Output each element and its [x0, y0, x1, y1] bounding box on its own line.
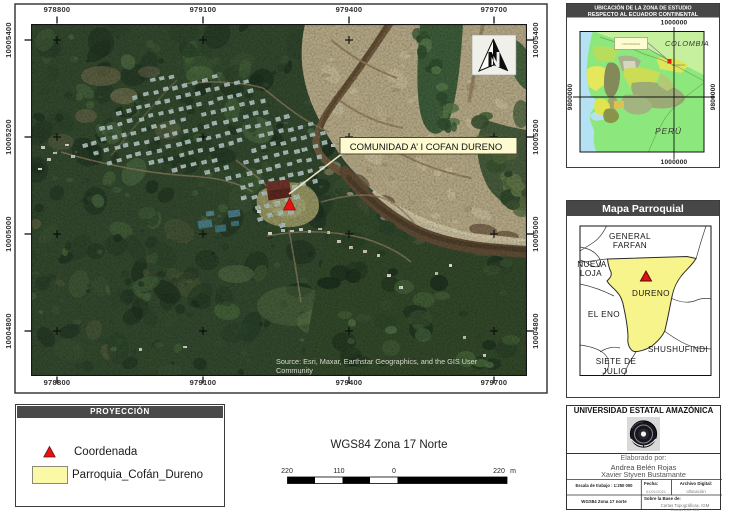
- svg-text:PERÚ: PERÚ: [655, 126, 682, 136]
- svg-text:GENERAL: GENERAL: [609, 232, 651, 241]
- svg-text:COMUNIDAD: COMUNIDAD: [622, 42, 641, 46]
- svg-text:110: 110: [333, 468, 344, 475]
- svg-text:COLOMBIA: COLOMBIA: [665, 39, 709, 48]
- svg-text:LOJA: LOJA: [580, 269, 602, 278]
- svg-text:m: m: [510, 468, 516, 475]
- svg-text:NUEVA: NUEVA: [577, 260, 607, 269]
- svg-text:9800000: 9800000: [710, 83, 717, 110]
- svg-text:Mapa Parroquial: Mapa Parroquial: [602, 203, 684, 215]
- svg-text:EL ENO: EL ENO: [588, 310, 620, 319]
- svg-text:FARFAN: FARFAN: [613, 241, 647, 250]
- svg-text:JULIO: JULIO: [602, 367, 627, 376]
- svg-text:DURENO: DURENO: [632, 289, 670, 298]
- svg-text:1000000: 1000000: [661, 159, 688, 166]
- svg-text:UBICACIÓN DE LA ZONA DE ESTUDI: UBICACIÓN DE LA ZONA DE ESTUDIO: [594, 4, 691, 12]
- svg-text:220: 220: [281, 468, 293, 475]
- svg-text:SHUSHUFINDI: SHUSHUFINDI: [648, 345, 708, 354]
- svg-text:9800000: 9800000: [567, 83, 574, 110]
- svg-text:220: 220: [493, 468, 505, 475]
- svg-text:0: 0: [392, 468, 396, 475]
- svg-text:SIETE DE: SIETE DE: [596, 357, 637, 366]
- svg-text:1000000: 1000000: [661, 20, 688, 27]
- svg-text:RESPECTO AL ECUADOR CONTINENTA: RESPECTO AL ECUADOR CONTINENTAL: [588, 12, 699, 18]
